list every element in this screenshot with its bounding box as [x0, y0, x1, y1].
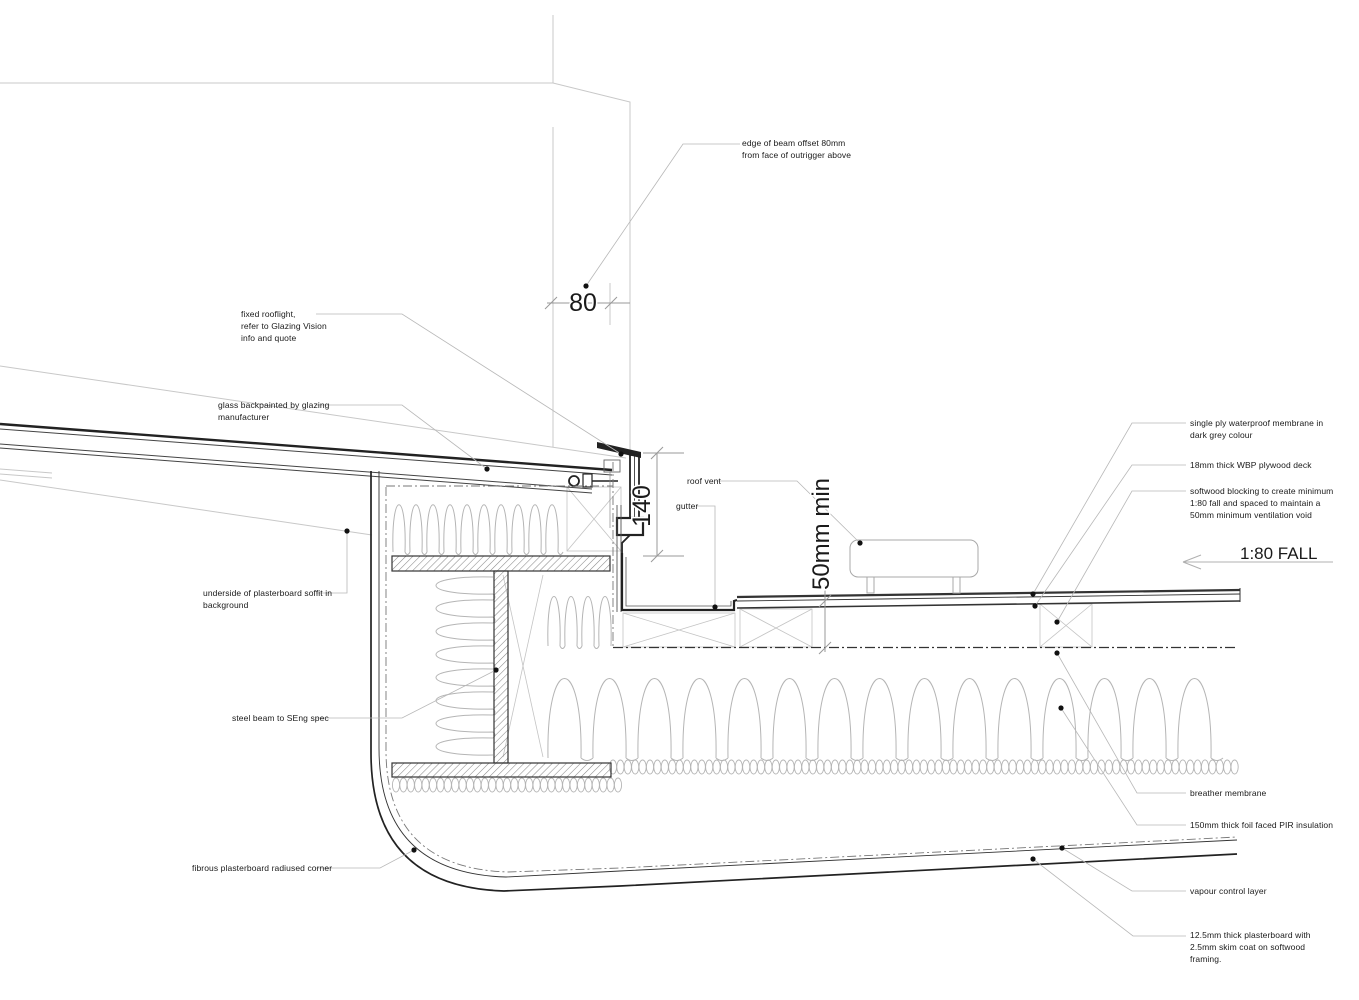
label-breather-membrane: breather membrane — [1190, 788, 1267, 798]
leader-lines — [316, 144, 1186, 936]
label-softwood-blocking: softwood blocking to create minimum — [1190, 486, 1333, 496]
background-structure-outline — [0, 15, 630, 454]
beam-bottom-flange — [392, 763, 611, 777]
label-glass-backpainted: glass backpainted by glazing — [218, 400, 330, 410]
label-fall: 1:80 FALL — [1240, 544, 1318, 563]
label-underside-soffit: background — [203, 600, 249, 610]
label-fixed-rooflight: refer to Glazing Vision — [241, 321, 327, 331]
pattern-path — [740, 609, 812, 647]
label-plasterboard-ceiling: 2.5mm skim coat on softwood — [1190, 942, 1305, 952]
beam-web — [494, 571, 508, 763]
gutter-channel — [622, 553, 737, 610]
label-pir-insulation: 150mm thick foil faced PIR insulation — [1190, 820, 1333, 830]
rooflight-glazing — [0, 424, 612, 493]
label-softwood-blocking: 50mm minimum ventilation void — [1190, 510, 1312, 520]
pattern-path — [609, 760, 1238, 774]
pattern-path — [623, 613, 735, 647]
label-fixed-rooflight: info and quote — [241, 333, 296, 343]
label-steel-beam: steel beam to SEng spec — [232, 713, 329, 723]
plywood-deck-bottom — [737, 601, 1240, 608]
dim-text-50mm-min: 50mm min — [808, 478, 835, 590]
label-plywood-deck: 18mm thick WBP plywood deck — [1190, 460, 1312, 470]
label-edge-of-beam: from face of outrigger above — [742, 150, 851, 160]
drawing-canvas: edge of beam offset 80mm from face of ou… — [0, 0, 1359, 1000]
label-fibrous-plasterboard: fibrous plasterboard radiused corner — [192, 863, 332, 873]
label-single-ply: single ply waterproof membrane in — [1190, 418, 1323, 428]
label-glass-backpainted: manufacturer — [218, 412, 269, 422]
architectural-detail-sheet: edge of beam offset 80mm from face of ou… — [0, 0, 1359, 1000]
label-vapour-control: vapour control layer — [1190, 886, 1267, 896]
pattern-path — [393, 505, 563, 555]
pattern-path — [548, 679, 1223, 761]
timber-blocking-braces — [503, 487, 1092, 757]
dim-text-140: 140 — [628, 485, 656, 527]
dim-text-80: 80 — [569, 289, 597, 317]
label-fixed-rooflight: fixed rooflight, — [241, 309, 296, 319]
label-gutter: gutter — [676, 501, 698, 511]
label-roof-vent: roof vent — [687, 476, 722, 486]
pattern-path — [392, 778, 621, 792]
roof-vent-unit — [850, 540, 978, 593]
label-plasterboard-ceiling: framing. — [1190, 954, 1222, 964]
beam-top-flange — [392, 556, 610, 571]
label-softwood-blocking: 1:80 fall and spaced to maintain a — [1190, 498, 1321, 508]
label-underside-soffit: underside of plasterboard soffit in — [203, 588, 332, 598]
label-single-ply: dark grey colour — [1190, 430, 1253, 440]
pattern-path — [436, 577, 495, 755]
pattern-path — [503, 575, 543, 757]
pattern-path — [1040, 604, 1092, 647]
frame-gasket — [569, 476, 579, 486]
steel-beam-section — [392, 556, 611, 777]
single-ply-membrane-line — [737, 590, 1240, 597]
label-edge-of-beam: edge of beam offset 80mm — [742, 138, 845, 148]
annotations: edge of beam offset 80mm from face of ou… — [192, 138, 1333, 964]
pattern-path — [548, 597, 611, 649]
label-plasterboard-ceiling: 12.5mm thick plasterboard with — [1190, 930, 1311, 940]
